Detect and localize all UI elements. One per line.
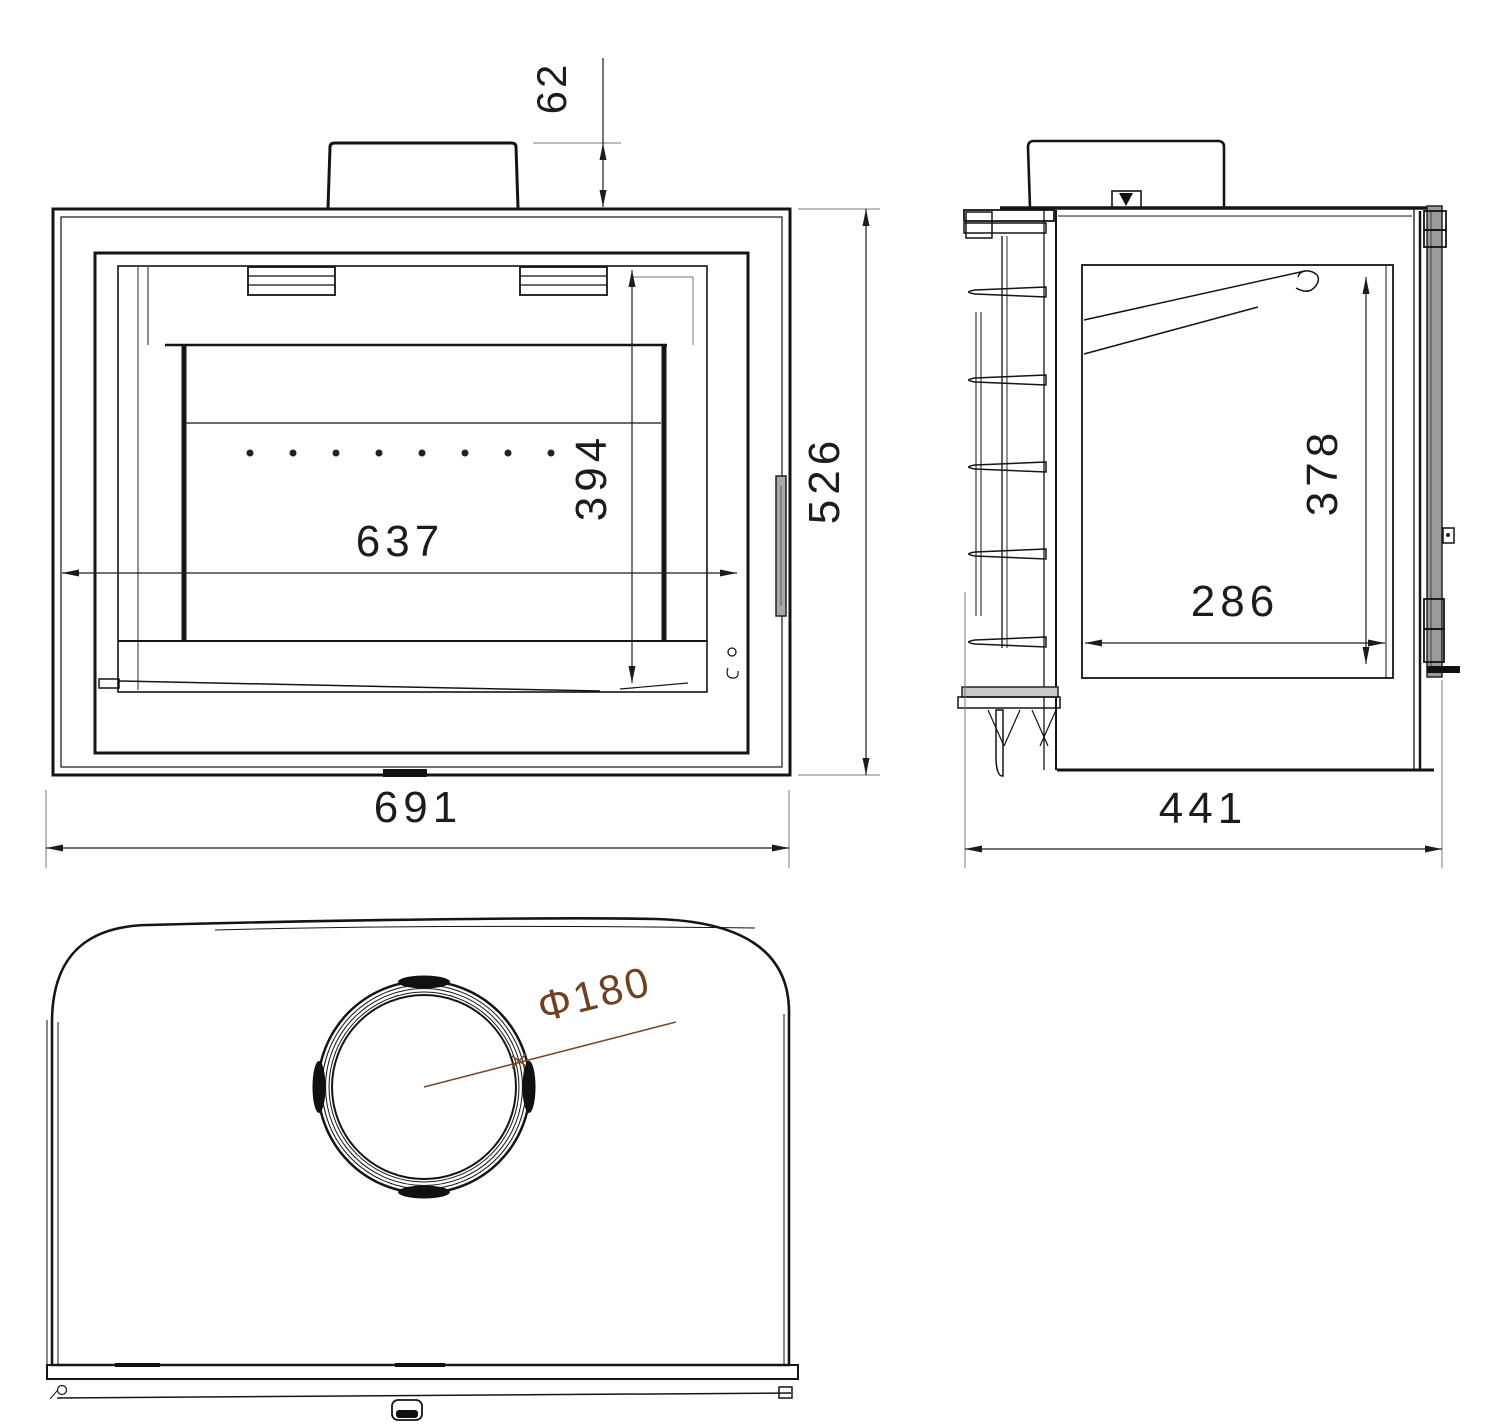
side-bottom-plate1 (962, 687, 1058, 697)
side-foot-bracket (1427, 666, 1460, 673)
front-door-frame (95, 253, 748, 753)
front-lip-slant-right (620, 683, 688, 689)
front-flue-collar (328, 143, 518, 208)
dim-flue-diameter: Φ180 (424, 957, 676, 1087)
side-baffle-curl (1296, 271, 1318, 291)
side-bottom-plate2 (958, 697, 1060, 708)
front-screw (728, 648, 736, 656)
dim-label-collar-height: 62 (528, 62, 575, 115)
top-left-screw (58, 1386, 67, 1395)
front-lip-slant-left (119, 681, 600, 691)
side-baffle (1084, 271, 1305, 354)
top-base-band (47, 1365, 798, 1379)
side-top-plate2 (964, 223, 1046, 233)
dim-glass-height: 394 (567, 270, 636, 683)
dim-label-side-depth: 441 (1159, 784, 1247, 833)
side-view: 378 286 441 (958, 141, 1460, 868)
side-leg-blade (996, 710, 1003, 776)
dim-front-width: 691 (46, 783, 789, 868)
dim-label-glass-width: 637 (356, 517, 444, 566)
drawing-canvas: 62 (0, 0, 1500, 1427)
dim-label-glass-height: 394 (567, 433, 616, 521)
front-door-handle (776, 476, 786, 616)
top-left-tick (50, 1391, 57, 1399)
top-view: Φ180 (47, 918, 798, 1420)
dim-firebox-depth: 286 (1085, 577, 1385, 647)
technical-drawing-page: 62 (0, 0, 1500, 1427)
side-door-glass (1427, 206, 1442, 677)
front-air-holes (247, 450, 555, 457)
dim-label-firebox-depth: 286 (1191, 577, 1279, 626)
dim-front-height: 526 (798, 209, 880, 775)
dim-label-front-height: 526 (800, 436, 849, 524)
dim-collar-height: 62 (528, 58, 621, 207)
front-outer-frame (53, 209, 790, 775)
front-glass-panel (118, 266, 707, 692)
side-latch-pin (1446, 533, 1450, 537)
side-fin-panel-edge (976, 312, 981, 616)
top-base-edge (57, 1393, 791, 1398)
side-collar-notch-mark (1119, 193, 1133, 206)
front-deflector-edge (633, 277, 693, 345)
side-top-block (966, 212, 992, 238)
front-view: 62 (46, 58, 880, 868)
front-latch-left (248, 267, 335, 295)
front-catch-hook (727, 668, 738, 678)
front-latch-right (520, 267, 607, 295)
dim-firebox-height: 378 (1298, 277, 1370, 664)
dim-side-depth: 441 (965, 592, 1442, 868)
top-inner-top-line (215, 926, 755, 930)
dim-label-firebox-height: 378 (1298, 428, 1347, 516)
top-center-knob (392, 1400, 422, 1420)
dim-glass-width: 637 (62, 517, 737, 577)
side-leg-braces (988, 710, 1056, 746)
front-bottom-notch (383, 769, 427, 777)
front-lip-foot (99, 679, 119, 688)
dim-label-front-width: 691 (374, 783, 462, 832)
dim-label-flue-diameter: Φ180 (533, 957, 657, 1031)
